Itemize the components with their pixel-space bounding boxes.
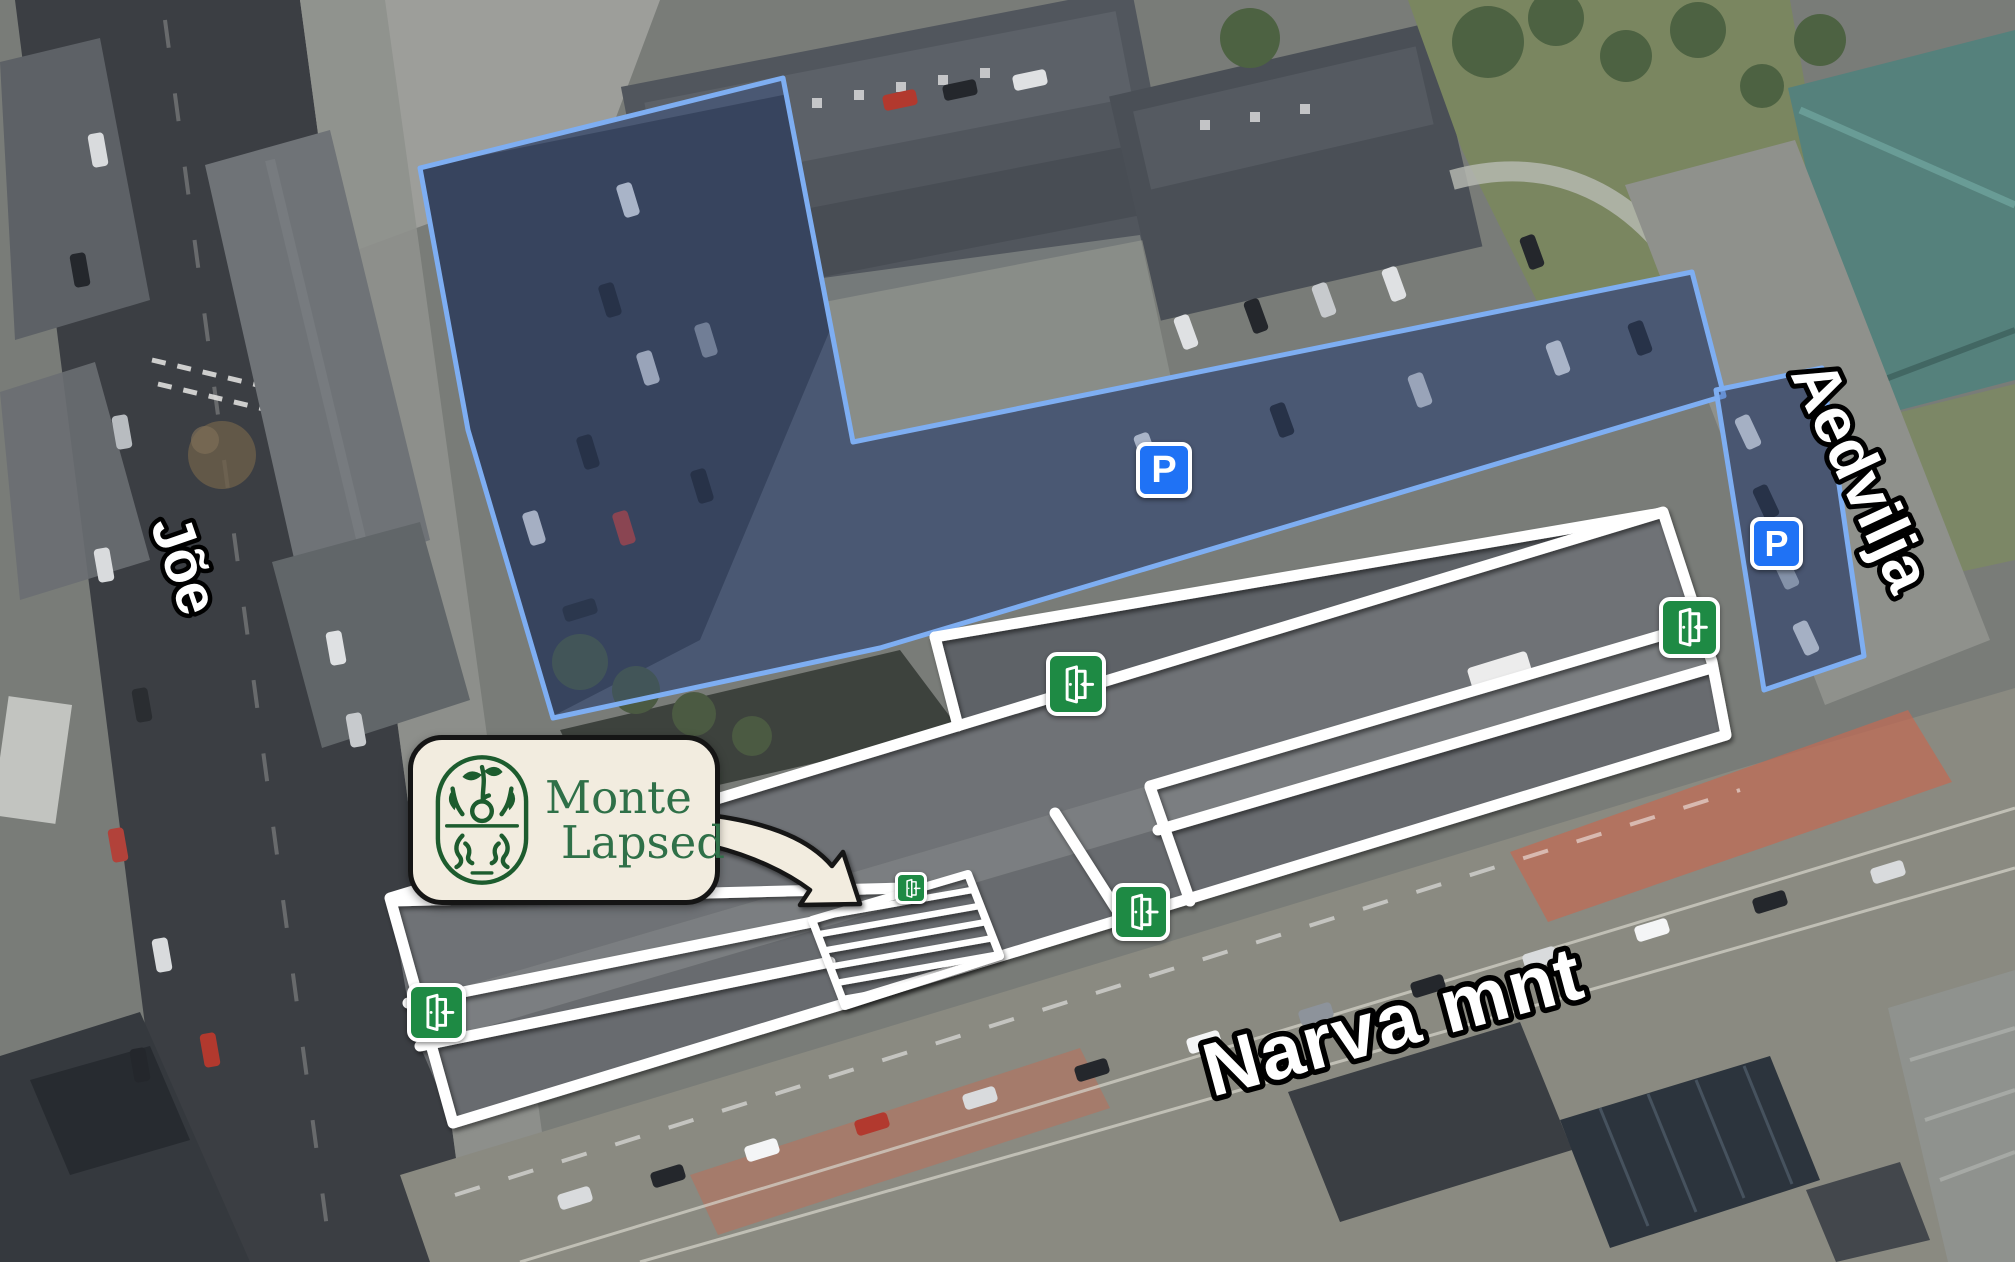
entrance-door-icon-4 [1112,883,1170,941]
parking-icon-aedvilja: P [1750,517,1803,570]
entrance-door-icon-1 [1659,597,1720,658]
logo-emblem-icon [433,753,531,887]
logo-card: Monte Lapsed [408,735,720,905]
open-door-icon [901,878,922,899]
parking-icon: P [1136,442,1192,498]
logo-title-line1: Monte [545,775,725,820]
entrance-door-icon-3 [895,872,927,904]
parking-icon-letter: P [1151,449,1176,492]
map-canvas[interactable]: Jõe Aedvilja Narva mnt P P [0,0,2015,1262]
entrance-door-icon-2 [1046,652,1106,716]
logo-title-line2: Lapsed [561,820,725,865]
open-door-icon [1055,662,1097,707]
open-door-icon [1121,892,1161,932]
open-door-icon [1668,606,1710,648]
parking-icon-letter: P [1764,523,1788,565]
logo-title: Monte Lapsed [545,775,725,865]
entrance-door-icon-5 [407,983,466,1042]
open-door-icon [416,992,457,1033]
